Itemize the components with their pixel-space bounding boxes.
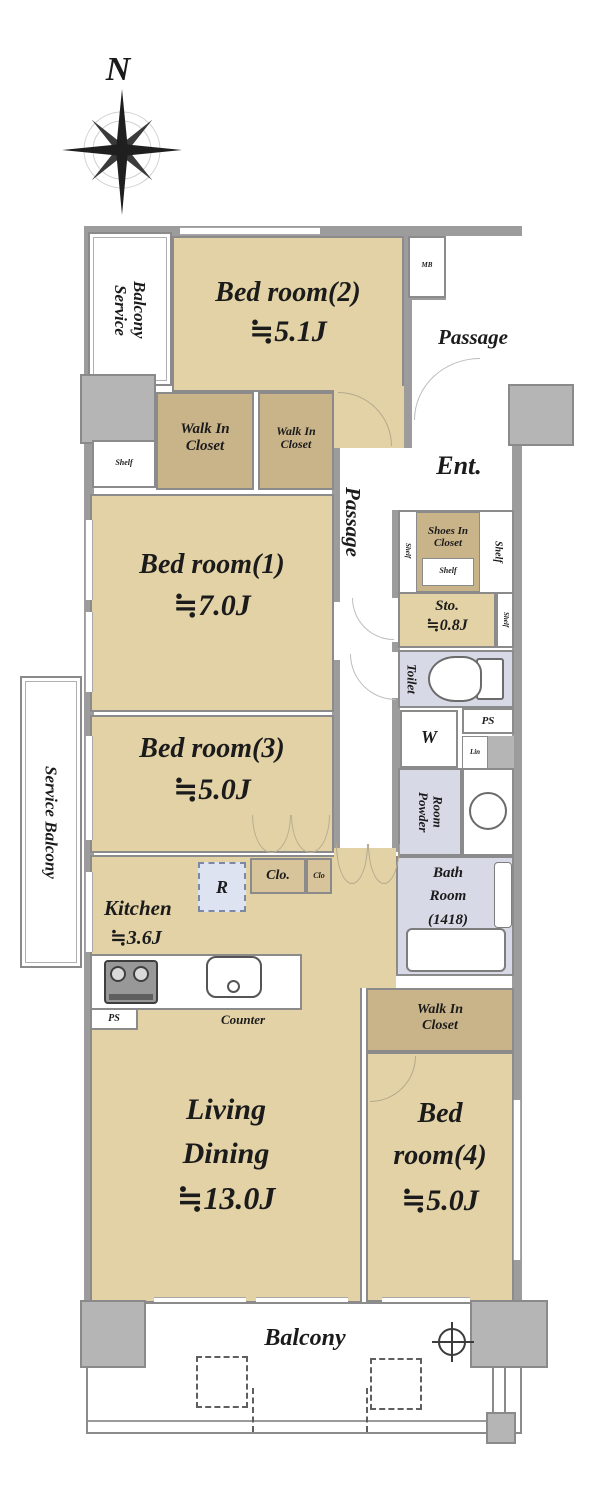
bedroom4-size-label: ≒5.0J <box>366 1182 514 1220</box>
balcony-hatch-left-line <box>252 1388 254 1432</box>
service-balcony-left-label: Service Balcony <box>24 690 78 954</box>
pillar-top-left <box>80 374 156 444</box>
shelf-top-left-label: Shelf <box>92 454 156 472</box>
wic3-label: Walk InCloset <box>366 996 514 1040</box>
closet-small-label: Clo <box>306 866 332 886</box>
window-bedroom2-top <box>180 227 320 235</box>
balcony-hatch-left <box>196 1356 248 1408</box>
bathtub <box>406 928 506 972</box>
pipe-space-kitchen-label: PS <box>90 1010 138 1028</box>
powder-room-label: PowderRoom <box>398 772 462 852</box>
passage-inner-label: Passage <box>338 464 366 579</box>
shoes-in-closet-label: Shoes InCloset <box>414 520 482 554</box>
pipe-space-upper-label: PS <box>462 710 514 732</box>
balcony-hatch-right <box>370 1358 422 1410</box>
storage-size-label: ≒0.8J <box>398 615 496 637</box>
drain-pipe <box>492 1368 506 1418</box>
refrigerator-label: R <box>198 862 246 912</box>
bedroom2-size-label: ≒5.1J <box>172 314 404 350</box>
counter-label: Counter <box>198 1010 288 1030</box>
floor-plan-page: N <box>0 0 600 1512</box>
storage-door-arc <box>352 598 394 640</box>
faucet-cross-h <box>432 1341 474 1343</box>
kitchen-size-label: ≒3.6J <box>110 926 250 950</box>
faucet-cross-v <box>451 1322 453 1362</box>
entrance-door-arc <box>414 358 480 420</box>
bedroom4-line2-label: room(4) <box>366 1138 514 1174</box>
passage-upper-label: Passage <box>408 324 538 352</box>
toilet-label: Toilet <box>400 652 422 706</box>
washbasin-icon <box>469 792 507 830</box>
closet-large-label: Clo. <box>250 862 306 890</box>
stove-burner-left <box>110 966 126 982</box>
toilet-bowl <box>428 656 482 702</box>
room-kitchen-living-dining <box>90 855 362 1303</box>
pillar-top-right <box>508 384 574 446</box>
living-dining-line1-label: Living <box>90 1092 362 1128</box>
wic2-label: Walk InCloset <box>258 418 334 458</box>
entrance-label: Ent. <box>416 450 502 482</box>
pillar-bottom-left <box>80 1300 146 1368</box>
compass-rose-icon <box>55 85 195 225</box>
wic1-label: Walk InCloset <box>156 416 254 460</box>
bedroom3-size-label: ≒5.0J <box>90 772 334 808</box>
washer-label: W <box>400 722 458 752</box>
drain-box <box>486 1412 516 1444</box>
service-balcony-top-label: ServiceBalcony <box>100 244 160 376</box>
bedroom1-size-label: ≒7.0J <box>90 588 334 624</box>
pillar-bottom-right <box>470 1300 548 1368</box>
living-dining-line2-label: Dining <box>90 1136 362 1172</box>
bedroom3-name-label: Bed room(3) <box>90 732 334 766</box>
storage-shelf-right-label: Shelf <box>496 596 514 644</box>
living-dining-size-label: ≒13.0J <box>90 1180 362 1218</box>
balcony-label: Balcony <box>200 1322 410 1354</box>
shoes-closet-shelf-right-label: Shelf <box>482 514 514 590</box>
linen-label: Lin <box>462 744 488 762</box>
meter-box-label: MB <box>408 256 446 276</box>
bedroom2-name-label: Bed room(2) <box>172 276 404 310</box>
balcony-inner-line <box>88 1420 488 1422</box>
stove-grill <box>109 994 153 1000</box>
toilet-door-arc <box>350 654 396 700</box>
sink-drain <box>227 980 240 993</box>
bath-room-label: BathRoom(1418) <box>396 862 500 932</box>
storage-name-label: Sto. <box>398 597 496 615</box>
shoes-closet-shelf-bottom-label: Shelf <box>422 560 474 582</box>
stove-burner-right <box>133 966 149 982</box>
shoes-closet-shelf-left-label: Shelf <box>398 522 416 580</box>
bedroom4-line1-label: Bed <box>366 1096 514 1132</box>
balcony-hatch-right-line <box>366 1388 368 1432</box>
window-bedroom4-right <box>513 1100 521 1260</box>
bedroom1-name-label: Bed room(1) <box>90 548 334 582</box>
window-kitchen-left <box>85 872 93 952</box>
window-bedroom1-left-b <box>85 612 93 692</box>
